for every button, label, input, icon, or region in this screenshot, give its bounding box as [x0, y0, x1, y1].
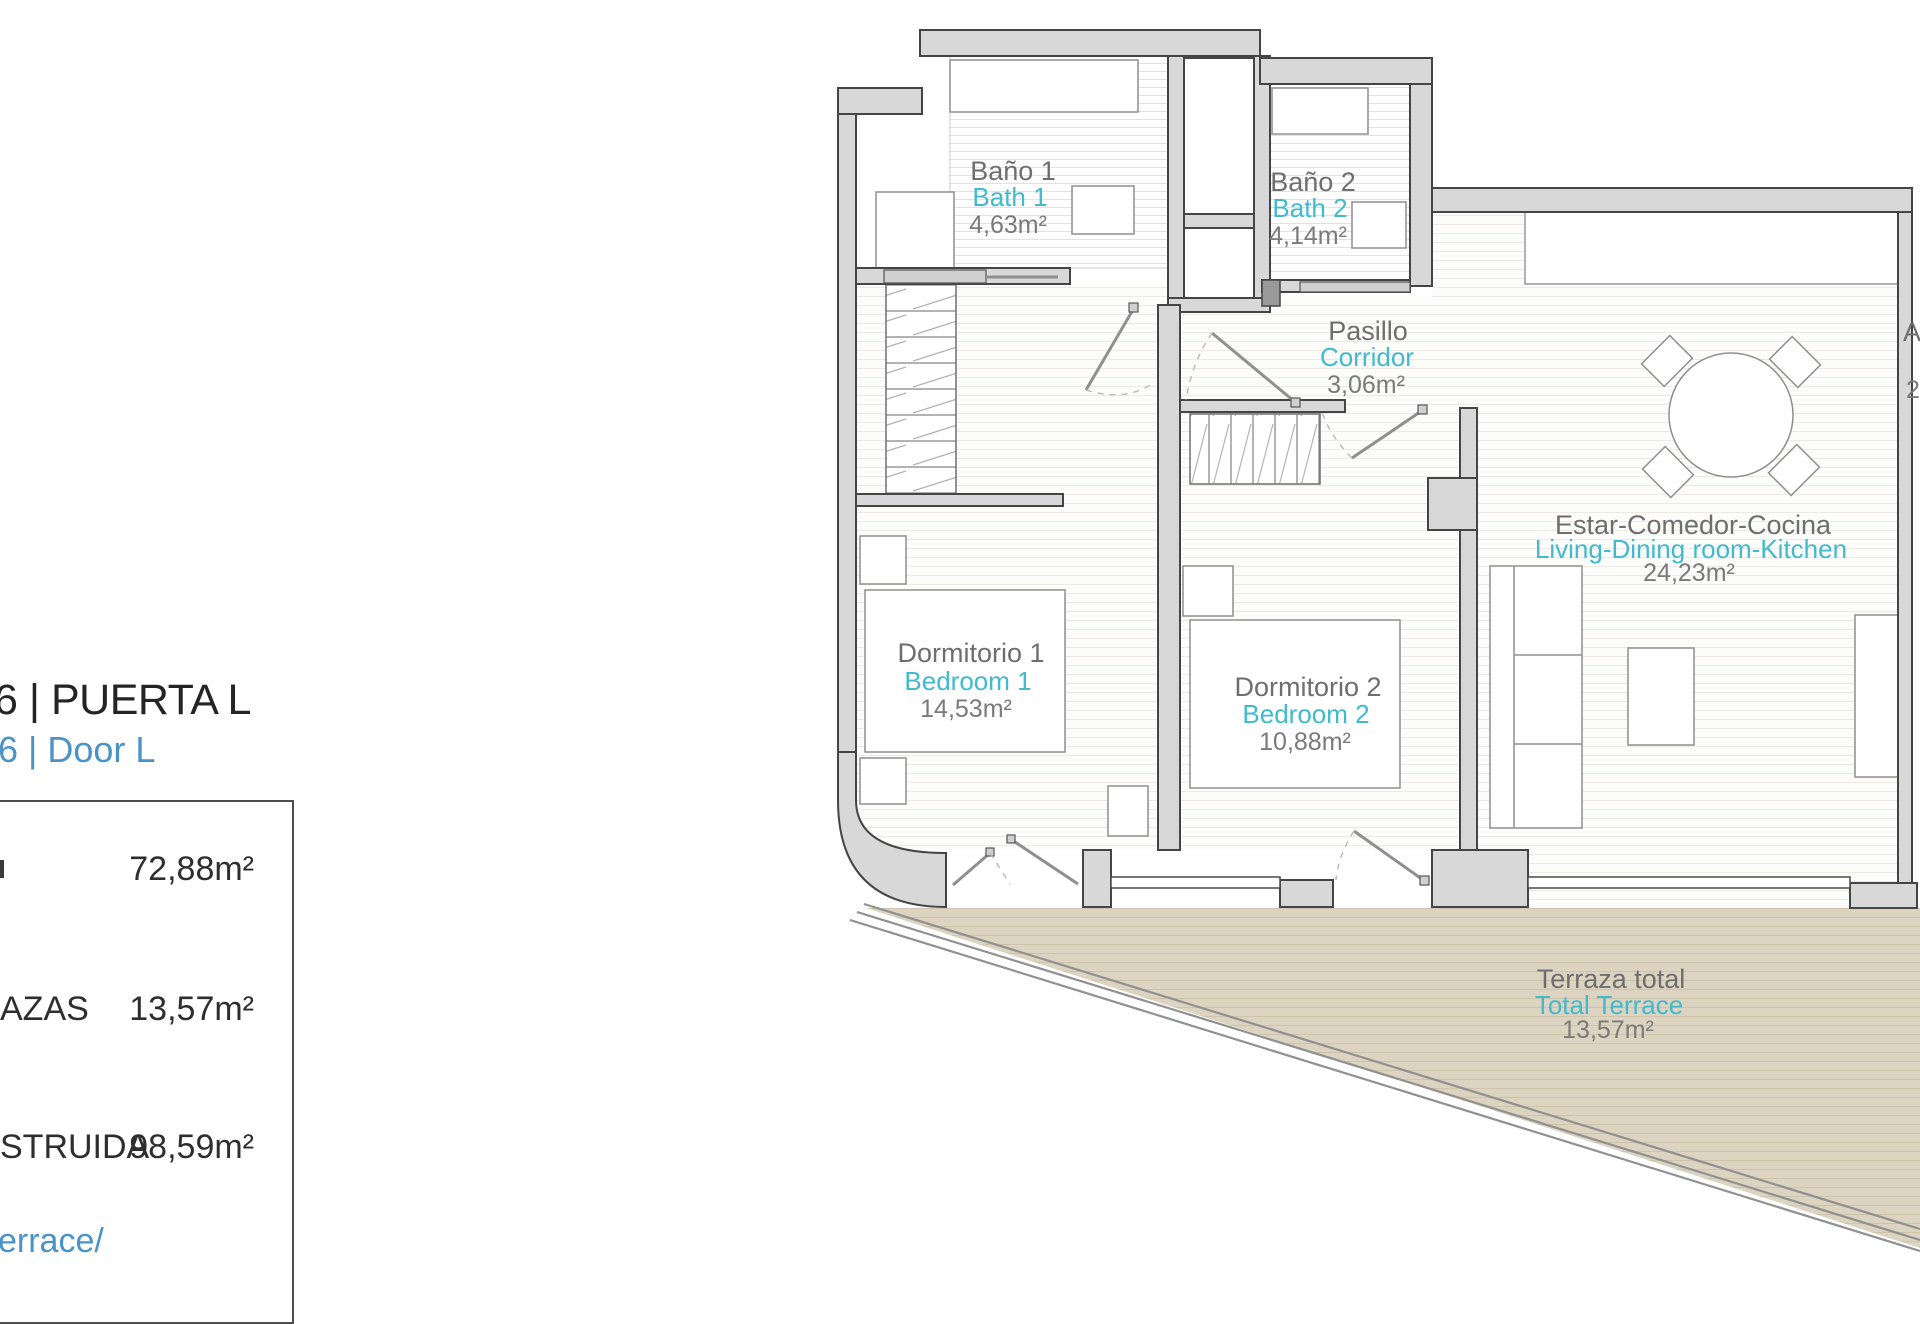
wall-block-bottom-2	[1280, 880, 1333, 907]
corridor-area: 3,06m²	[1327, 371, 1405, 399]
wall-entry-notch	[1428, 478, 1477, 530]
wall-left-outer	[838, 114, 856, 754]
summary-row-3-value: 98,59m²	[0, 1128, 254, 1167]
bedroom2-name-es: Dormitorio 2	[1234, 672, 1381, 702]
bath1-sliding-door	[884, 270, 986, 283]
bedroom1-name-es: Dormitorio 1	[897, 638, 1044, 668]
wall-living-top	[1432, 188, 1912, 212]
door-jamb-bath2	[1262, 280, 1280, 306]
wall-block-bottom-3	[1432, 850, 1528, 907]
wall-bedrooms-divider	[1158, 305, 1180, 850]
summary-row-1-value: 72,88m²	[0, 850, 254, 889]
folding-door-leaf-1	[953, 853, 990, 885]
bath2-sink	[1352, 202, 1406, 248]
bath2-area: 4,14m²	[1269, 222, 1347, 250]
bath1-tub	[950, 60, 1138, 112]
bedroom2-window	[1111, 877, 1280, 888]
duct-box-upper	[1184, 58, 1254, 214]
bedroom2-area: 10,88m²	[1259, 728, 1351, 756]
wall-entry-vertical	[1460, 408, 1477, 850]
bed2-nightstand	[1183, 566, 1233, 616]
unit-title: 6 | PUERTA L	[0, 676, 251, 725]
bedroom2-door-hinge	[1291, 398, 1300, 407]
bath1-sink	[1072, 186, 1134, 234]
folding-door-hinge-2	[1007, 835, 1015, 843]
bath1-area: 4,63m²	[969, 211, 1047, 239]
bath2-tub	[1272, 88, 1368, 134]
room-label-bath2: Baño 2 Bath 2 4,14m²	[1269, 167, 1356, 250]
wardrobe-corridor	[886, 284, 956, 494]
sofa	[1490, 566, 1582, 828]
folding-door-arc	[990, 853, 1010, 884]
bath2-sliding-door	[1300, 282, 1410, 292]
bedroom1-name-en: Bedroom 1	[904, 666, 1031, 696]
floor-plan-page: Baño 1 Bath 1 4,63m² Baño 2 Bath 2 4,14m…	[0, 0, 1920, 1280]
wall-living-right	[1898, 212, 1912, 887]
wall-shaft-left	[1168, 56, 1184, 310]
panel-footer-fragment: errace/	[0, 1222, 104, 1261]
wall-bath2-top	[1260, 58, 1432, 84]
wall-bath2-right	[1410, 84, 1432, 286]
bath1-name-en: Bath 1	[972, 182, 1047, 212]
summary-row-2-value: 13,57m²	[0, 990, 254, 1029]
wall-bedroom1-top	[856, 494, 1063, 506]
wall-block-bottom-4	[1850, 883, 1917, 908]
wall-top-bath1	[920, 30, 1260, 56]
bath2-name-en: Bath 2	[1272, 193, 1347, 223]
wall-shaft-mid	[1184, 214, 1254, 228]
bedroom1-door-hinge	[1129, 303, 1138, 312]
bedroom2-name-en: Bedroom 2	[1242, 699, 1369, 729]
folding-door-hinge-1	[986, 848, 994, 856]
wall-shaft-right	[1254, 56, 1270, 310]
bed1-side-table	[1108, 786, 1148, 836]
bed1-nightstand-top	[860, 536, 906, 584]
wardrobe-bedroom2	[1190, 414, 1320, 484]
terrace-door-hinge	[1420, 876, 1429, 885]
edge-fragment-a: A	[1903, 317, 1920, 347]
dining-table	[1669, 353, 1793, 477]
tv-cabinet	[1855, 615, 1900, 777]
bedroom1-area: 14,53m²	[920, 695, 1012, 723]
wall-step-left	[838, 88, 922, 114]
room-label-bath1: Baño 1 Bath 1 4,63m²	[969, 156, 1056, 239]
bath1-shower	[876, 192, 954, 270]
living-window	[1528, 877, 1850, 888]
wall-bedroom2-top	[1180, 400, 1345, 412]
unit-subtitle: 6 | Door L	[0, 729, 155, 771]
coffee-table	[1628, 648, 1694, 745]
terrace-area: 13,57m²	[1562, 1016, 1654, 1044]
edge-fragment-b: 2	[1906, 376, 1920, 404]
bed1-nightstand-bottom	[860, 758, 906, 804]
room-label-corridor: Pasillo Corridor 3,06m²	[1320, 316, 1414, 399]
living-area: 24,23m²	[1643, 559, 1735, 587]
wall-shaft-bottom	[1168, 298, 1270, 312]
entry-door-hinge	[1418, 405, 1427, 414]
wall-block-bottom-1	[1083, 850, 1111, 907]
corridor-name-en: Corridor	[1320, 342, 1414, 372]
kitchen-counter	[1525, 212, 1898, 284]
duct-box-lower	[1184, 228, 1254, 298]
